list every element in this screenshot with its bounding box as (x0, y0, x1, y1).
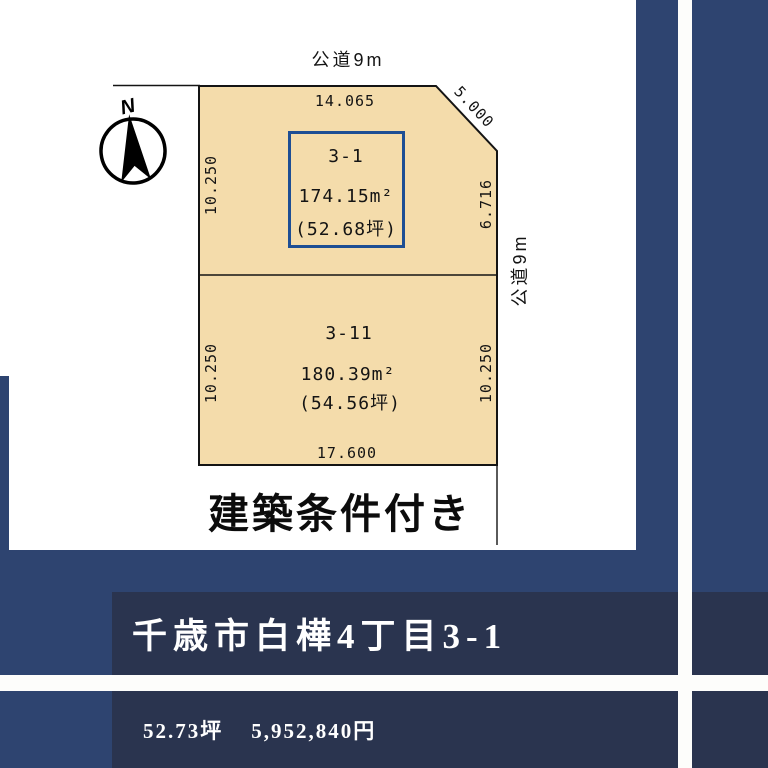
dimension-top: 14.065 (295, 91, 395, 111)
lot2-area-m2: 180.39m² (248, 364, 448, 385)
price-yen: 5,952,840円 (251, 719, 376, 743)
price-panel: 52.73坪5,952,840円 (112, 691, 768, 768)
dimension-right-lower: 10.250 (476, 323, 496, 423)
lot1-area-m2: 174.15m² (246, 186, 446, 207)
dimension-right-upper: 6.716 (476, 154, 496, 254)
road-label-right: 公道9m (506, 210, 532, 330)
address-panel: 千歳市白樺4丁目3-1 (112, 592, 768, 675)
vertical-white-separator (678, 0, 692, 768)
price-text: 52.73坪5,952,840円 (112, 715, 376, 745)
building-conditions-caption: 建築条件付き (120, 480, 560, 532)
road-label-top: 公道9m (288, 46, 408, 72)
dimension-left-upper: 10.250 (201, 135, 221, 235)
dimension-left-lower: 10.250 (201, 323, 221, 423)
price-tsubo: 52.73坪 (143, 719, 223, 743)
address-text: 千歳市白樺4丁目3-1 (112, 608, 507, 659)
lot2-number: 3-11 (249, 323, 449, 344)
horizontal-white-separator (0, 675, 768, 691)
lot1-number: 3-1 (246, 146, 446, 167)
land-flyer: { "colors": { "frame_navy": "#2e4470", "… (0, 0, 768, 768)
lot2-area-tsubo: (54.56坪) (250, 389, 450, 415)
lot1-area-tsubo: (52.68坪) (246, 215, 446, 241)
dimension-bottom: 17.600 (297, 443, 397, 463)
north-compass (97, 111, 168, 186)
